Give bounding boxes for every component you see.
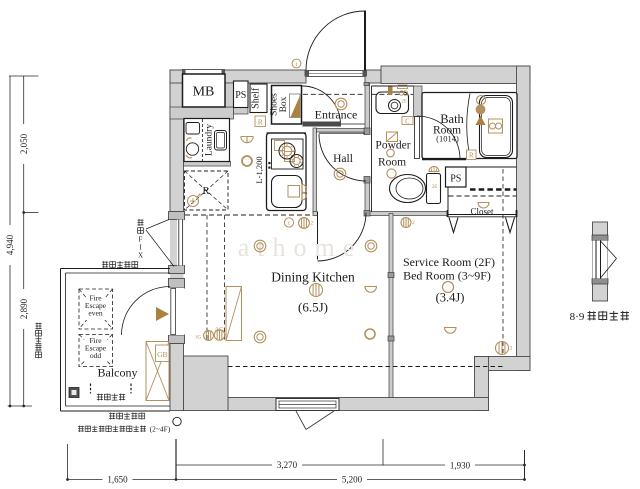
svg-text:PS: PS bbox=[450, 174, 461, 185]
svg-text:2: 2 bbox=[311, 221, 314, 227]
svg-text:GB: GB bbox=[157, 350, 167, 359]
svg-text:(6.5J): (6.5J) bbox=[298, 300, 328, 315]
svg-text:PS: PS bbox=[235, 90, 246, 101]
svg-text:Shoes: Shoes bbox=[270, 93, 280, 116]
svg-text:4,940: 4,940 bbox=[5, 234, 15, 255]
svg-text:Powder: Powder bbox=[375, 140, 410, 152]
svg-text:2: 2 bbox=[510, 346, 513, 352]
svg-text:Hall: Hall bbox=[333, 153, 353, 165]
svg-text:2,890: 2,890 bbox=[19, 298, 29, 319]
svg-text:5,200: 5,200 bbox=[342, 475, 363, 485]
svg-text:2: 2 bbox=[412, 220, 415, 226]
svg-text:F: F bbox=[139, 236, 143, 244]
svg-text:AC: AC bbox=[214, 326, 223, 333]
svg-text:1,650: 1,650 bbox=[107, 475, 128, 485]
svg-text:R: R bbox=[202, 186, 209, 197]
svg-text:Balcony: Balcony bbox=[98, 366, 138, 380]
svg-text:even: even bbox=[88, 309, 102, 318]
svg-text:2E: 2E bbox=[401, 100, 407, 105]
svg-text:C: C bbox=[405, 117, 410, 125]
svg-text:(1014): (1014) bbox=[436, 134, 459, 144]
svg-text:(2~4F): (2~4F) bbox=[150, 425, 171, 434]
svg-text:Service Room (2F): Service Room (2F) bbox=[403, 255, 495, 269]
svg-text:athome: athome bbox=[238, 233, 363, 262]
svg-text:Shelf: Shelf bbox=[251, 87, 262, 109]
svg-text:2,050: 2,050 bbox=[19, 133, 29, 154]
svg-text:Entrance: Entrance bbox=[315, 107, 358, 121]
svg-text:1G: 1G bbox=[195, 336, 202, 341]
svg-text:R: R bbox=[469, 152, 474, 160]
svg-text:MB: MB bbox=[193, 85, 215, 100]
svg-text:Bed Room (3~9F): Bed Room (3~9F) bbox=[403, 269, 491, 283]
svg-text:Room: Room bbox=[378, 157, 406, 169]
svg-text:L-1,200: L-1,200 bbox=[254, 156, 264, 183]
svg-text:2E: 2E bbox=[432, 185, 438, 190]
svg-text:Laundry: Laundry bbox=[205, 124, 215, 156]
svg-text:X: X bbox=[138, 252, 143, 260]
svg-text:odd: odd bbox=[90, 351, 102, 360]
svg-text:R: R bbox=[258, 117, 263, 126]
svg-text:8·9: 8·9 bbox=[570, 311, 585, 323]
svg-text:1,930: 1,930 bbox=[450, 461, 471, 471]
svg-text:Dining Kitchen: Dining Kitchen bbox=[271, 269, 355, 284]
svg-text:3,270: 3,270 bbox=[277, 460, 298, 470]
svg-text:Box: Box bbox=[279, 96, 289, 112]
